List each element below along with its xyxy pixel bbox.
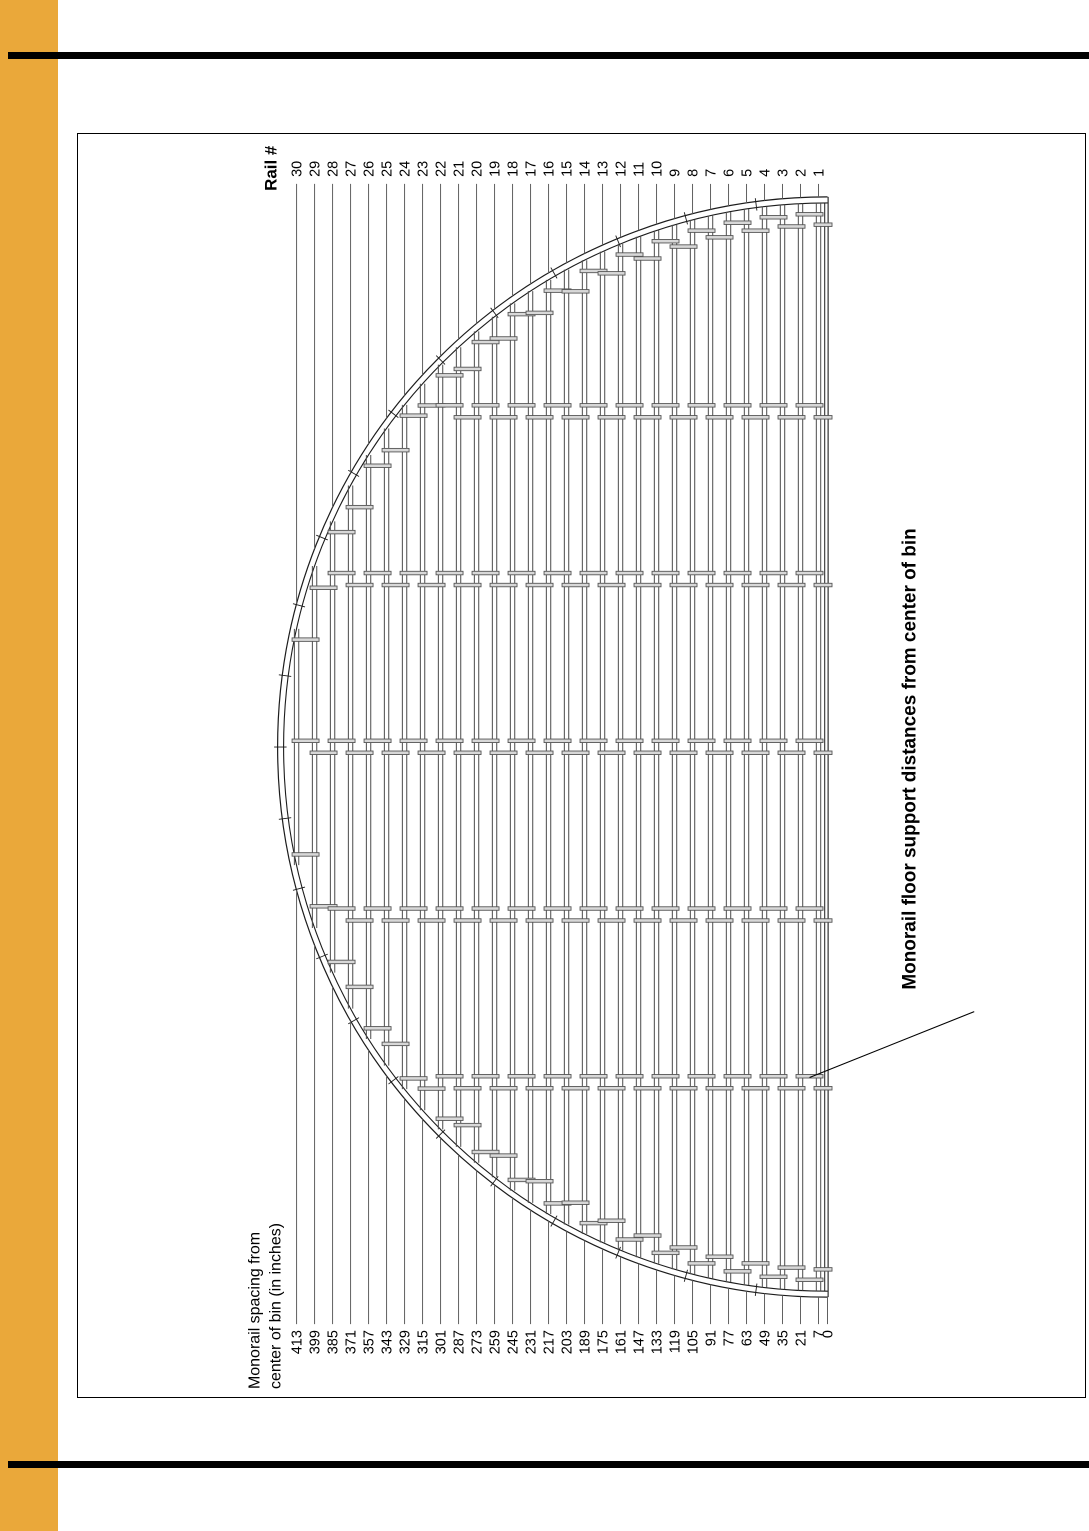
floor-support	[418, 583, 445, 586]
floor-support	[382, 751, 409, 754]
floor-support	[526, 416, 553, 419]
rail-number-label: 18	[506, 161, 522, 177]
floor-support	[796, 571, 823, 574]
floor-support	[454, 583, 481, 586]
floor-support	[652, 1075, 679, 1078]
floor-support	[454, 751, 481, 754]
floor-support	[796, 213, 823, 216]
floor-support	[490, 1154, 517, 1157]
floor-support	[490, 751, 517, 754]
floor-support	[814, 583, 832, 586]
rail-number-label: 21	[452, 161, 468, 177]
floor-support	[688, 1075, 715, 1078]
floor-support	[526, 1179, 553, 1182]
floor-support	[742, 583, 769, 586]
rail-number-label: 17	[524, 161, 540, 177]
rail-number-label: 26	[362, 161, 378, 177]
rail-number-label: 2	[794, 169, 810, 177]
floor-support	[472, 1150, 499, 1153]
rail-number-label: 3	[776, 169, 792, 177]
spacing-label: 105	[686, 1330, 702, 1354]
left-accent-bar	[0, 0, 58, 1531]
floor-support	[544, 907, 571, 910]
floor-support	[346, 505, 373, 508]
spacing-label: 203	[560, 1330, 576, 1354]
floor-support	[436, 739, 463, 742]
rail-number-label: 27	[344, 161, 360, 177]
floor-support	[634, 416, 661, 419]
floor-support	[796, 1075, 823, 1078]
floor-support	[400, 414, 427, 417]
floor-support	[814, 1086, 832, 1089]
floor-support	[706, 751, 733, 754]
floor-support	[652, 571, 679, 574]
floor-support	[454, 416, 481, 419]
spacing-label: 287	[452, 1330, 468, 1354]
floor-support	[652, 239, 679, 242]
spacing-label: 133	[650, 1330, 666, 1354]
floor-support	[364, 464, 391, 467]
spacing-label: 371	[344, 1330, 360, 1354]
spacing-label: 35	[776, 1330, 792, 1346]
rail-number-label: 16	[542, 161, 558, 177]
floor-support	[400, 571, 427, 574]
floor-support	[292, 739, 319, 742]
floor-support	[544, 404, 571, 407]
floor-support	[292, 638, 319, 641]
rail-number-label: 29	[308, 161, 324, 177]
floor-support	[364, 739, 391, 742]
rail-number-label: 11	[632, 162, 648, 177]
floor-support	[346, 583, 373, 586]
floor-support	[652, 404, 679, 407]
floor-support	[454, 1086, 481, 1089]
floor-support	[580, 1075, 607, 1078]
floor-support	[688, 404, 715, 407]
floor-support	[292, 853, 319, 856]
floor-support	[562, 583, 589, 586]
floor-support	[382, 448, 409, 451]
floor-support	[508, 404, 535, 407]
rail-number-label: 13	[596, 161, 612, 177]
floor-support	[724, 739, 751, 742]
floor-support	[634, 583, 661, 586]
spacing-label: 21	[794, 1330, 810, 1346]
floor-support	[526, 919, 553, 922]
floor-support	[526, 751, 553, 754]
floor-support	[616, 1075, 643, 1078]
floor-support	[508, 1075, 535, 1078]
manual-page: 3041329399283852737126357253432432923315…	[0, 0, 1089, 1531]
rail-number-label: 10	[650, 161, 666, 177]
spacing-caption-line1: Monorail spacing from	[247, 1232, 264, 1389]
floor-support	[706, 416, 733, 419]
floor-support	[364, 571, 391, 574]
arc-joint-tick	[293, 887, 305, 890]
bin-floor-drawing: 3041329399283852737126357253432432923315…	[274, 161, 836, 1354]
floor-support	[670, 416, 697, 419]
floor-support	[796, 1278, 823, 1281]
floor-support	[418, 919, 445, 922]
floor-support	[436, 1075, 463, 1078]
floor-support	[814, 223, 832, 226]
floor-support	[796, 907, 823, 910]
spacing-label: 385	[326, 1330, 342, 1354]
floor-support	[400, 907, 427, 910]
spacing-label: 273	[470, 1330, 486, 1354]
rail-number-label: 25	[380, 161, 396, 177]
spacing-label: 77	[722, 1330, 738, 1346]
floor-support	[598, 1219, 625, 1222]
floor-support	[598, 1086, 625, 1089]
floor-support	[382, 1042, 409, 1045]
diagram-title: Monorail floor support distances from ce…	[899, 528, 920, 989]
rail-number-label: 12	[614, 161, 630, 177]
bin-floor-diagram: 3041329399283852737126357253432432923315…	[78, 134, 1085, 1397]
floor-support	[418, 1087, 445, 1090]
floor-support	[544, 739, 571, 742]
floor-support	[706, 583, 733, 586]
floor-support	[472, 340, 499, 343]
spacing-caption-line2: center of bin (in inches)	[268, 1223, 285, 1389]
floor-support	[490, 416, 517, 419]
arc-joint-tick	[684, 1270, 687, 1282]
floor-support	[670, 583, 697, 586]
floor-support	[346, 751, 373, 754]
floor-support	[706, 236, 733, 239]
rail-number-label: 1	[812, 169, 828, 177]
floor-support	[652, 907, 679, 910]
rail-number-label: 24	[398, 161, 414, 177]
floor-support	[688, 229, 715, 232]
floor-support	[400, 1077, 427, 1080]
spacing-label: 91	[704, 1330, 720, 1346]
spacing-label: 231	[524, 1330, 540, 1354]
floor-support	[688, 739, 715, 742]
floor-support	[778, 751, 805, 754]
spacing-label-center: 0	[821, 1330, 837, 1338]
floor-support	[760, 907, 787, 910]
arc-joint-tick	[684, 212, 687, 224]
floor-support	[562, 416, 589, 419]
spacing-label: 175	[596, 1330, 612, 1354]
floor-support	[436, 571, 463, 574]
spacing-label: 343	[380, 1330, 396, 1354]
floor-support	[634, 257, 661, 260]
arc-joint-tick	[279, 675, 291, 677]
rail-number-label: 4	[758, 169, 774, 177]
floor-support	[454, 367, 481, 370]
floor-support	[706, 919, 733, 922]
floor-support	[562, 1086, 589, 1089]
floor-support	[796, 739, 823, 742]
floor-support	[598, 919, 625, 922]
spacing-label: 161	[614, 1330, 630, 1354]
floor-support	[796, 404, 823, 407]
floor-support	[328, 960, 355, 963]
floor-support	[526, 311, 553, 314]
floor-support	[580, 739, 607, 742]
floor-support	[454, 1123, 481, 1126]
floor-support	[616, 571, 643, 574]
floor-support	[724, 221, 751, 224]
floor-support	[760, 571, 787, 574]
rail-number-label: 5	[740, 169, 756, 177]
floor-support	[436, 907, 463, 910]
diagram-frame: 3041329399283852737126357253432432923315…	[77, 133, 1086, 1398]
rail-number-label: 9	[668, 169, 684, 177]
floor-support	[616, 739, 643, 742]
floor-support	[760, 739, 787, 742]
floor-support	[544, 571, 571, 574]
spacing-label: 49	[758, 1330, 774, 1346]
bin-wall-outer-arc	[278, 197, 828, 1297]
floor-support	[562, 751, 589, 754]
floor-support	[742, 751, 769, 754]
floor-support	[490, 919, 517, 922]
floor-support	[328, 907, 355, 910]
floor-support	[598, 751, 625, 754]
floor-support	[508, 907, 535, 910]
floor-support	[742, 229, 769, 232]
floor-support	[598, 272, 625, 275]
floor-support	[562, 919, 589, 922]
floor-support	[580, 404, 607, 407]
floor-support	[562, 290, 589, 293]
floor-support	[670, 245, 697, 248]
floor-support	[670, 1086, 697, 1089]
floor-support	[544, 1075, 571, 1078]
floor-support	[706, 1086, 733, 1089]
rail-number-label: 23	[416, 161, 432, 177]
floor-support	[436, 1117, 463, 1120]
rail-number-label: 28	[326, 161, 342, 177]
floor-support	[418, 751, 445, 754]
floor-support	[778, 225, 805, 228]
floor-support	[382, 919, 409, 922]
bin-wall-inner-arc	[284, 203, 828, 1291]
floor-support	[778, 416, 805, 419]
rail-number-label: 22	[434, 161, 450, 177]
floor-support	[652, 1251, 679, 1254]
arc-joint-tick	[279, 818, 291, 820]
floor-support	[490, 337, 517, 340]
floor-support	[724, 907, 751, 910]
spacing-label: 329	[398, 1330, 414, 1354]
floor-support	[778, 1266, 805, 1269]
spacing-label: 413	[290, 1330, 306, 1354]
spacing-label: 259	[488, 1330, 504, 1354]
rail-number-label: 15	[560, 161, 576, 177]
floor-support	[328, 530, 355, 533]
floor-support	[670, 919, 697, 922]
floor-support	[760, 1075, 787, 1078]
floor-support	[724, 404, 751, 407]
floor-support	[616, 1238, 643, 1241]
spacing-label: 147	[632, 1330, 648, 1354]
spacing-label: 301	[434, 1330, 450, 1354]
floor-support	[328, 571, 355, 574]
arc-joint-tick	[755, 198, 757, 210]
floor-support	[310, 751, 337, 754]
floor-support	[778, 583, 805, 586]
floor-support	[400, 739, 427, 742]
floor-support	[634, 919, 661, 922]
spacing-label: 217	[542, 1330, 558, 1354]
top-rule	[8, 52, 1089, 59]
rail-number-label: 20	[470, 161, 486, 177]
floor-support	[346, 985, 373, 988]
floor-support	[328, 739, 355, 742]
floor-support	[814, 919, 832, 922]
floor-support	[526, 583, 553, 586]
floor-support	[742, 416, 769, 419]
floor-support	[742, 919, 769, 922]
floor-support	[472, 571, 499, 574]
floor-support	[364, 907, 391, 910]
floor-support	[508, 571, 535, 574]
rail-number-label: 30	[290, 161, 306, 177]
floor-support	[580, 571, 607, 574]
arc-joint-tick	[755, 1284, 757, 1296]
floor-support	[688, 1262, 715, 1265]
floor-support	[670, 751, 697, 754]
floor-support	[598, 583, 625, 586]
spacing-label: 245	[506, 1330, 522, 1354]
floor-support	[616, 253, 643, 256]
floor-support	[814, 751, 832, 754]
floor-support	[598, 416, 625, 419]
spacing-label: 315	[416, 1330, 432, 1354]
floor-support	[472, 404, 499, 407]
rail-axis-label: Rail #	[262, 145, 281, 191]
spacing-label: 357	[362, 1330, 378, 1354]
floor-support	[814, 1268, 832, 1271]
spacing-label: 189	[578, 1330, 594, 1354]
floor-support	[778, 1086, 805, 1089]
floor-support	[688, 571, 715, 574]
spacing-label: 63	[740, 1330, 756, 1346]
floor-support	[634, 1234, 661, 1237]
rail-number-label: 7	[704, 169, 720, 177]
floor-support	[634, 1086, 661, 1089]
floor-support	[526, 1086, 553, 1089]
spacing-label: 399	[308, 1330, 324, 1354]
floor-support	[346, 919, 373, 922]
floor-support	[742, 1262, 769, 1265]
floor-support	[616, 907, 643, 910]
floor-support	[724, 571, 751, 574]
floor-support	[760, 404, 787, 407]
floor-support	[436, 374, 463, 377]
spacing-label: 119	[668, 1330, 684, 1353]
floor-support	[670, 1246, 697, 1249]
rail-number-label: 8	[686, 169, 702, 177]
floor-support	[778, 919, 805, 922]
rail-number-label: 14	[578, 161, 594, 177]
floor-support	[688, 907, 715, 910]
floor-support	[508, 739, 535, 742]
floor-support	[454, 919, 481, 922]
floor-support	[472, 1075, 499, 1078]
floor-support	[742, 1086, 769, 1089]
floor-support	[310, 586, 337, 589]
floor-support	[580, 907, 607, 910]
floor-support	[724, 1270, 751, 1273]
floor-support	[760, 1275, 787, 1278]
floor-support	[472, 907, 499, 910]
rail-number-label: 19	[488, 161, 504, 177]
floor-support	[562, 1201, 589, 1204]
rail-number-label: 6	[722, 169, 738, 177]
floor-support	[382, 583, 409, 586]
floor-support	[634, 751, 661, 754]
floor-support	[436, 404, 463, 407]
floor-support	[652, 739, 679, 742]
title-leader-line	[810, 1012, 975, 1078]
arc-joint-tick	[293, 604, 305, 607]
floor-support	[364, 1027, 391, 1030]
floor-support	[616, 404, 643, 407]
floor-support	[490, 1086, 517, 1089]
bottom-rule	[8, 1461, 1089, 1468]
floor-support	[814, 416, 832, 419]
floor-support	[724, 1075, 751, 1078]
floor-support	[490, 583, 517, 586]
floor-support	[706, 1255, 733, 1258]
floor-support	[472, 739, 499, 742]
floor-support	[760, 216, 787, 219]
